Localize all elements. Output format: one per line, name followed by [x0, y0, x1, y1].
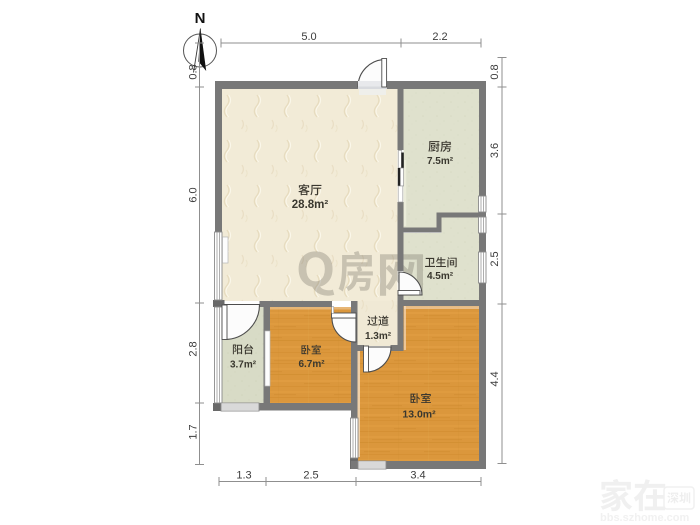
svg-text:3.7m²: 3.7m² — [230, 360, 257, 371]
svg-text:3.6: 3.6 — [489, 143, 501, 158]
svg-text:N: N — [195, 10, 206, 27]
svg-text:5.0: 5.0 — [301, 31, 316, 43]
svg-text:2.8: 2.8 — [188, 341, 200, 356]
svg-text:2.5: 2.5 — [303, 470, 318, 482]
svg-text:4.5m²: 4.5m² — [427, 271, 454, 282]
svg-text:28.8m²: 28.8m² — [292, 199, 329, 211]
svg-text:1.7: 1.7 — [188, 424, 200, 439]
svg-text:0.8: 0.8 — [188, 64, 200, 79]
svg-text:1.3m²: 1.3m² — [365, 331, 392, 342]
svg-text:0.8: 0.8 — [489, 64, 501, 79]
svg-text:3.4: 3.4 — [410, 470, 425, 482]
svg-text:6.0: 6.0 — [188, 187, 200, 202]
svg-text:bbs.szhome.com: bbs.szhome.com — [600, 512, 689, 524]
svg-text:2.5: 2.5 — [489, 251, 501, 266]
svg-text:1.3: 1.3 — [236, 470, 251, 482]
svg-text:7.5m²: 7.5m² — [427, 156, 454, 167]
svg-text:13.0m²: 13.0m² — [402, 409, 436, 421]
svg-text:2.2: 2.2 — [432, 31, 447, 43]
svg-text:6.7m²: 6.7m² — [298, 359, 325, 370]
svg-text:4.4: 4.4 — [489, 371, 501, 386]
